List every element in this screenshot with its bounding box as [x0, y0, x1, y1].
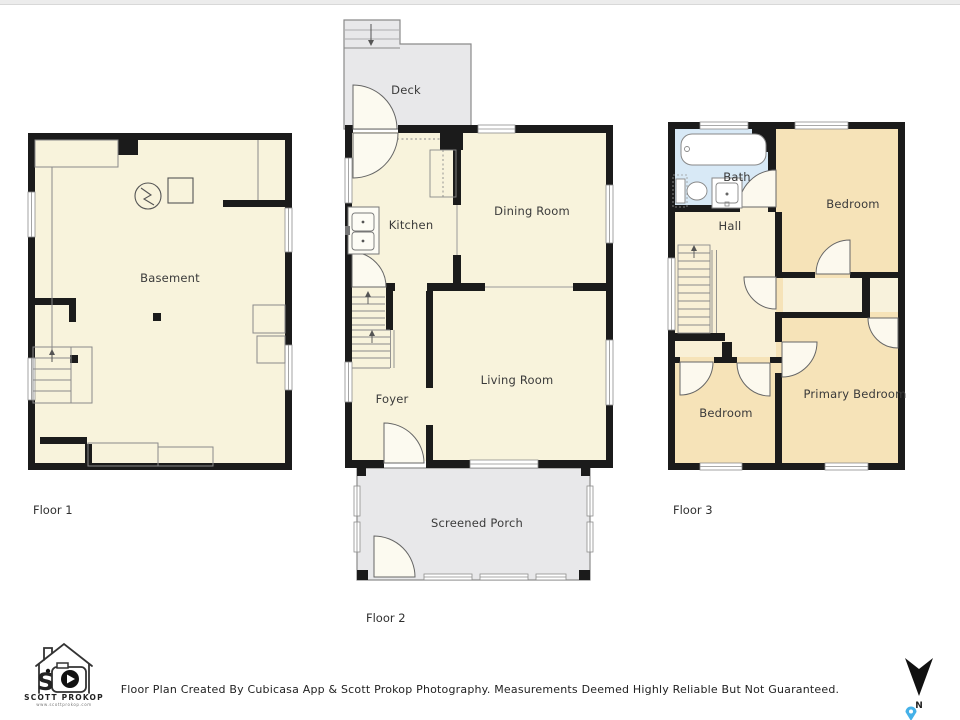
- compass: N: [895, 652, 940, 720]
- floor-3-caption: Floor 3: [673, 503, 713, 517]
- kitchen-sink: [345, 207, 379, 254]
- map-pin-icon: [906, 707, 917, 720]
- footer-disclaimer: Floor Plan Created By Cubicasa App & Sco…: [0, 683, 960, 696]
- floor-2-plan: [335, 8, 620, 590]
- logo-url-text: www.scottprokop.com: [36, 702, 92, 707]
- scott-prokop-logo: S SCOTT PROKOP www.scottprokop.com: [24, 637, 108, 709]
- north-arrow-icon: [905, 658, 933, 696]
- closet-left: [783, 278, 862, 312]
- north-label: N: [915, 701, 923, 711]
- floor-plan-page: Basement Deck Kitchen Dining Room Living…: [0, 0, 960, 720]
- room-label-primary-bedroom: Primary Bedroom: [803, 387, 906, 401]
- room-label-bedroom-top: Bedroom: [826, 197, 879, 211]
- page-top-border: [0, 0, 960, 5]
- room-label-foyer: Foyer: [376, 392, 409, 406]
- room-label-hall: Hall: [719, 219, 742, 233]
- floor-2-caption: Floor 2: [366, 611, 406, 625]
- room-label-bedroom-bottom: Bedroom: [699, 406, 752, 420]
- room-label-bath: Bath: [723, 170, 751, 184]
- room-label-dining-room: Dining Room: [494, 204, 570, 218]
- floor-1-plan: [20, 125, 300, 480]
- floor-1-caption: Floor 1: [33, 503, 73, 517]
- room-label-kitchen: Kitchen: [389, 218, 434, 232]
- closet-right: [870, 278, 898, 312]
- room-label-basement: Basement: [140, 271, 200, 285]
- room-label-deck: Deck: [391, 83, 421, 97]
- floor-3-plan: [660, 115, 915, 480]
- bathtub: [681, 134, 766, 165]
- room-label-screened-porch: Screened Porch: [431, 516, 523, 530]
- room-label-living-room: Living Room: [481, 373, 554, 387]
